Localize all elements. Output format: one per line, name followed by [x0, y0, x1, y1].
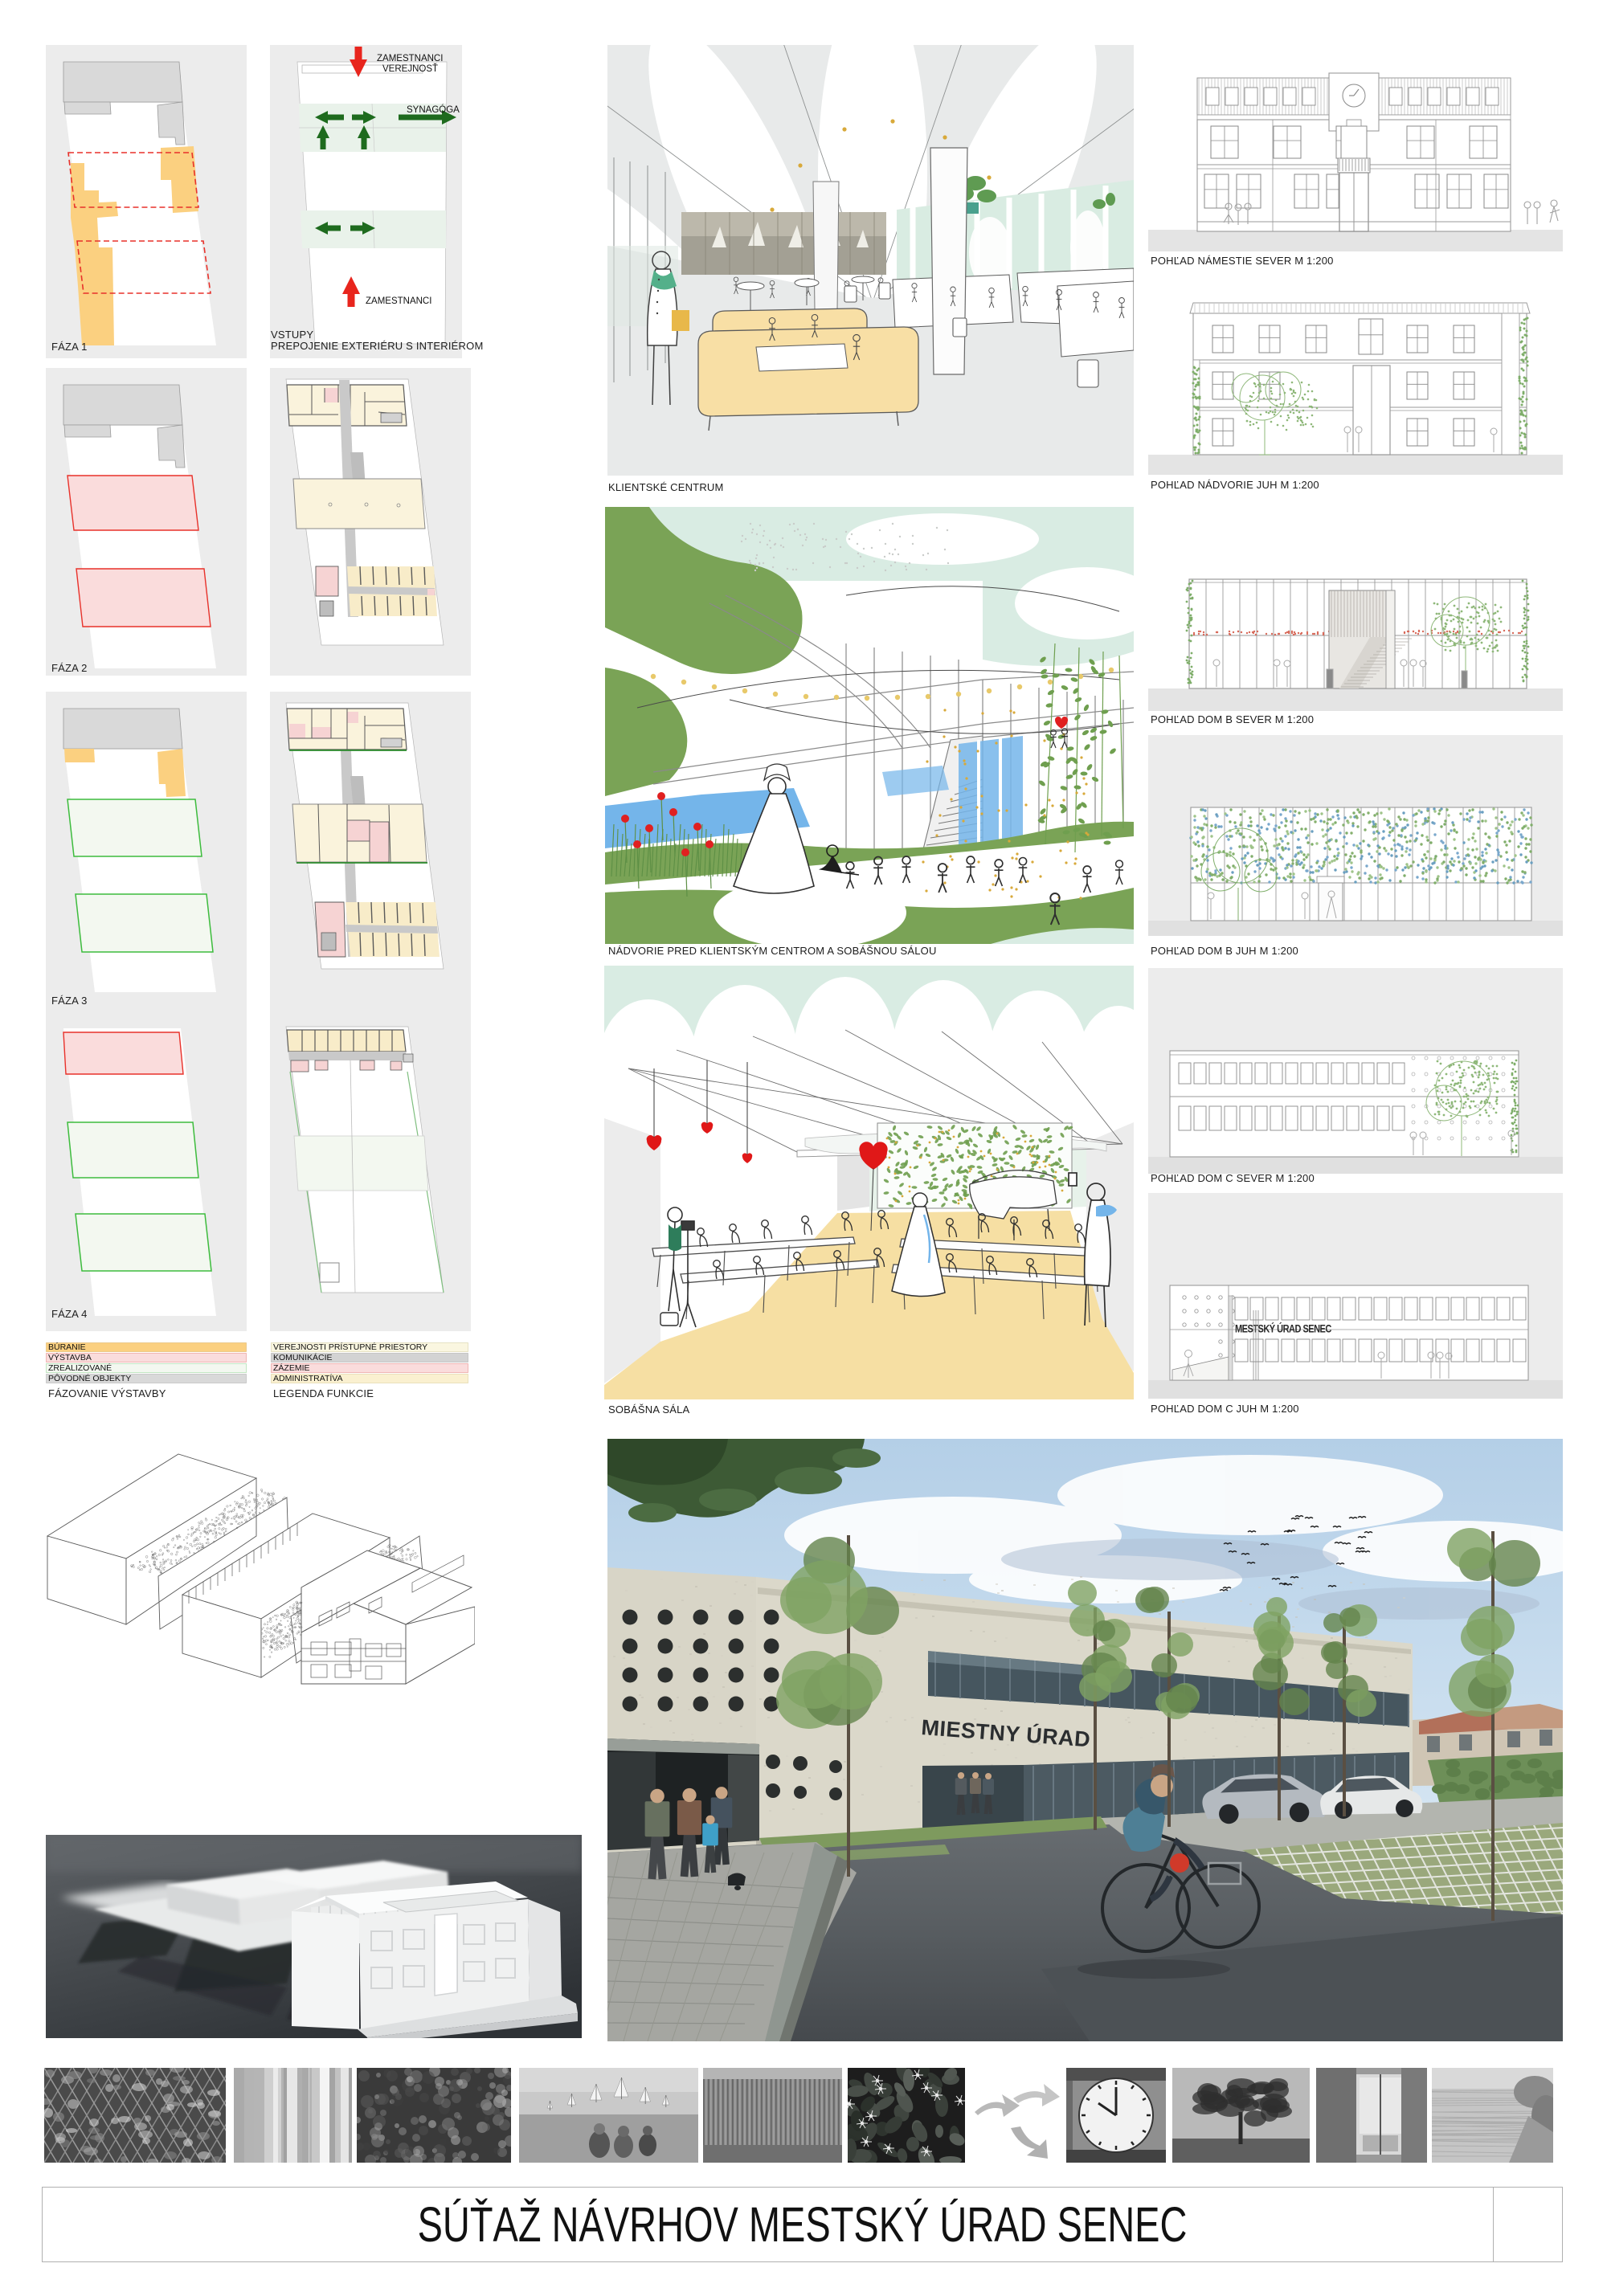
svg-text:MESTSKÝ ÚRAD SENEC: MESTSKÝ ÚRAD SENEC [1235, 1322, 1331, 1335]
svg-text:PÔVODNÉ OBJEKTY: PÔVODNÉ OBJEKTY [48, 1373, 131, 1383]
svg-text:VEREJNOSTI PRÍSTUPNÉ PRIESTORY: VEREJNOSTI PRÍSTUPNÉ PRIESTORY [273, 1342, 427, 1352]
svg-text:KOMUNIKÁCIE: KOMUNIKÁCIE [273, 1352, 333, 1362]
svg-text:ZAMESTNANCI: ZAMESTNANCI [377, 54, 443, 63]
svg-text:VÝSTAVBA: VÝSTAVBA [48, 1352, 92, 1362]
svg-text:BÚRANIE: BÚRANIE [48, 1342, 86, 1352]
svg-text:SYNAGÓGA: SYNAGÓGA [407, 104, 460, 115]
svg-text:ADMINISTRATÍVA: ADMINISTRATÍVA [273, 1373, 343, 1383]
svg-text:ZÁZEMIE: ZÁZEMIE [273, 1362, 310, 1373]
svg-text:VEREJNOSŤ: VEREJNOSŤ [382, 63, 438, 74]
svg-text:ZAMESTNANCI: ZAMESTNANCI [366, 296, 431, 306]
svg-text:ZREALIZOVANÉ: ZREALIZOVANÉ [48, 1362, 112, 1373]
